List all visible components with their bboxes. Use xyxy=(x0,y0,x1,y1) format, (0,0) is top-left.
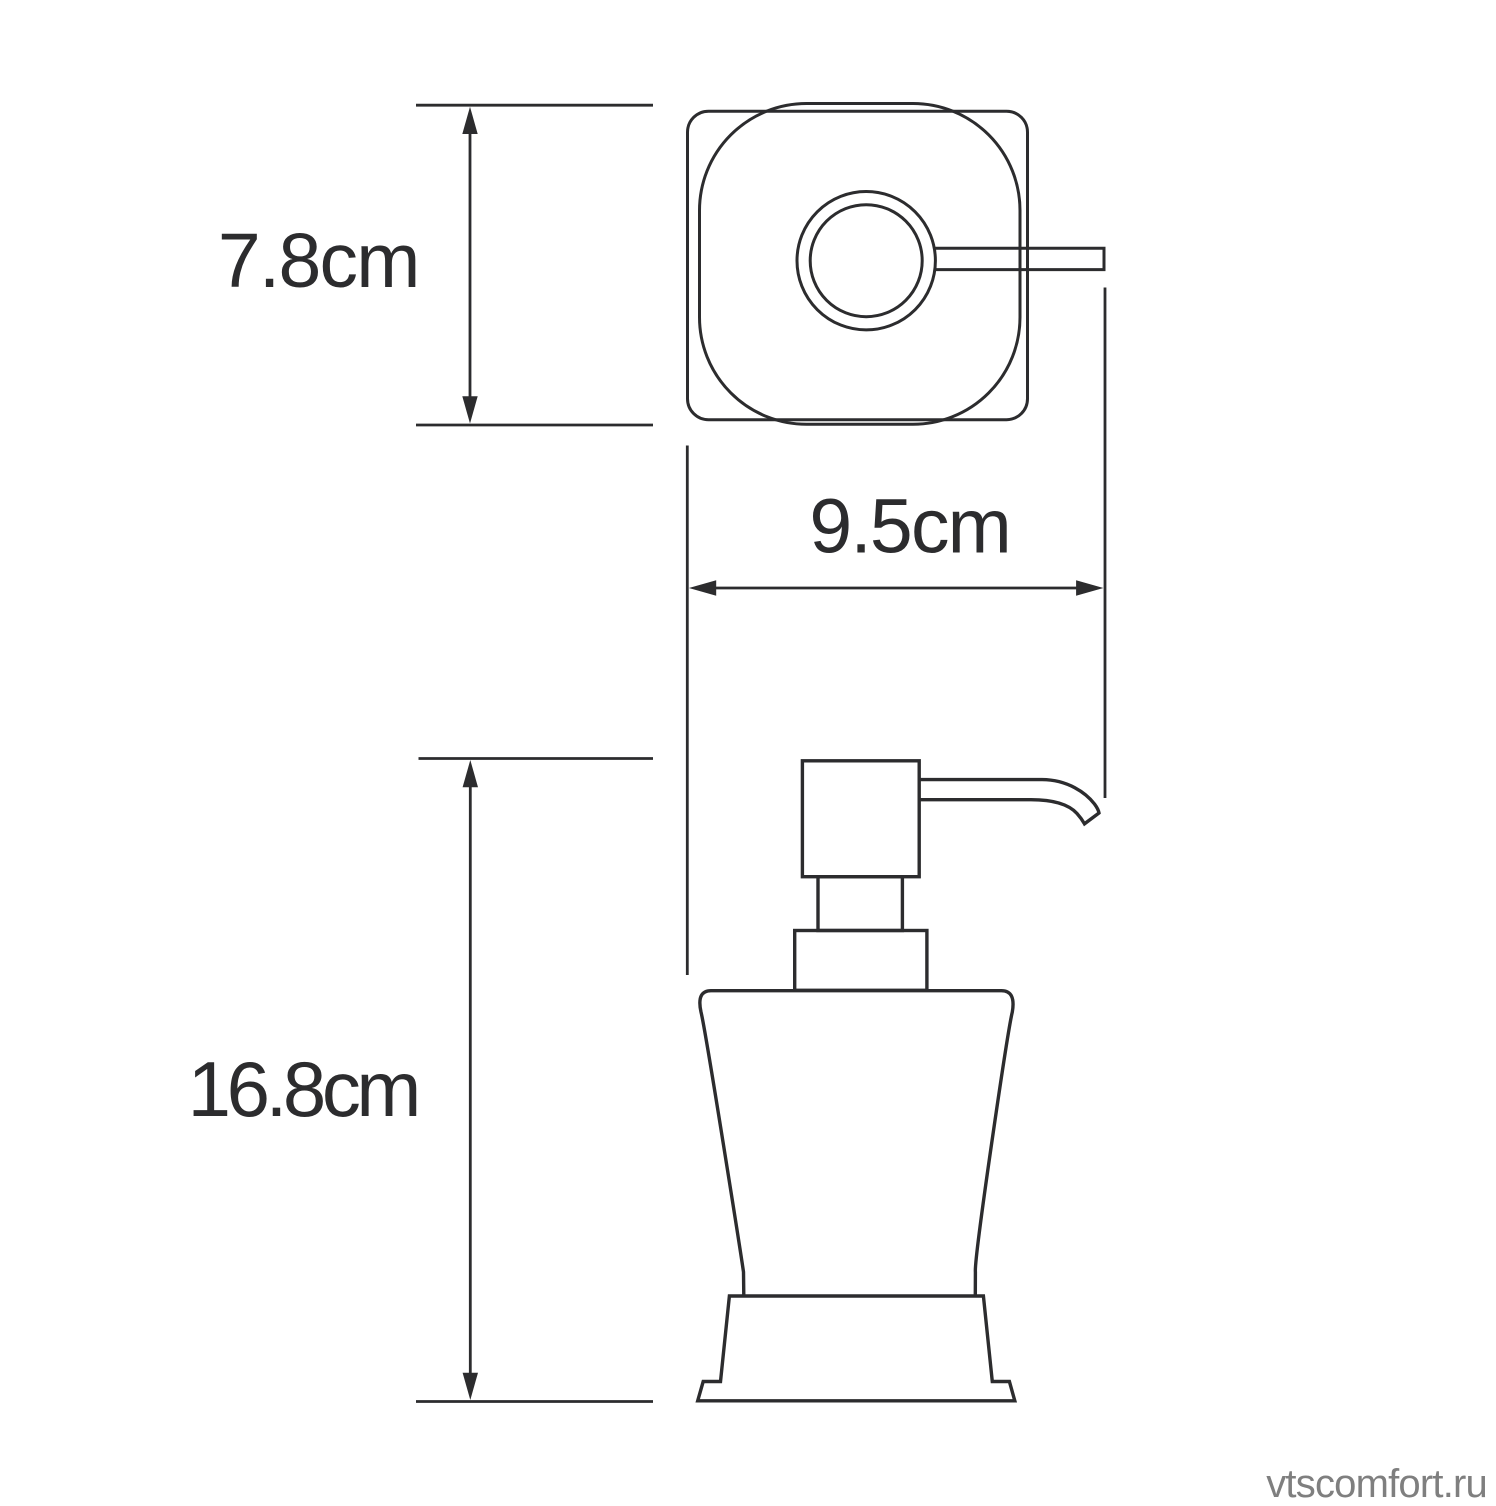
svg-text:16.8cm: 16.8cm xyxy=(188,1045,417,1133)
svg-text:vtscomfort.ru: vtscomfort.ru xyxy=(1266,1462,1487,1506)
svg-text:9.5cm: 9.5cm xyxy=(809,484,1010,570)
svg-text:7.8cm: 7.8cm xyxy=(218,218,419,304)
